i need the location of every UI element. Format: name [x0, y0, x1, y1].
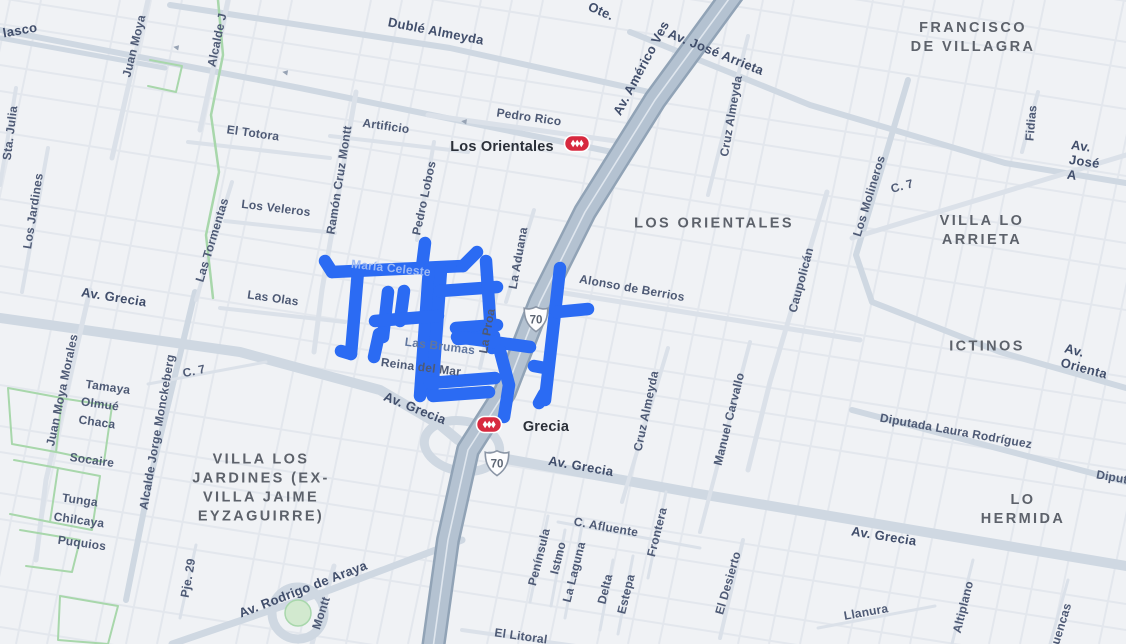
- street-label-av-jos-a: Av. José A: [1066, 137, 1110, 187]
- oneway-arrow-icon: ◄: [171, 41, 182, 52]
- district-label-francisco-de-villagra: FRANCISCO DE VILLAGRA: [911, 19, 1036, 57]
- route-segment-18: [433, 392, 489, 396]
- route-segment-22: [534, 366, 545, 368]
- district-label-villa-los-jardines-ex-villa-jaime-eyzaguirre: VILLA LOS JARDINES (EX- VILLA JAIME EYZA…: [192, 450, 330, 525]
- route-segment-17: [430, 378, 495, 383]
- district-label-los-orientales: LOS ORIENTALES: [634, 215, 794, 234]
- district-label-villa-lo-arrieta: VILLA LO ARRIETA: [910, 212, 1054, 250]
- route-segment-16: [500, 351, 509, 417]
- route-segment-21: [557, 309, 588, 312]
- route-segment-3: [463, 252, 477, 266]
- route-segment-20: [545, 268, 560, 400]
- route-segment-19: [374, 334, 379, 357]
- oneway-arrow-icon: ◄: [280, 66, 291, 77]
- metro-station-icon[interactable]: [476, 416, 503, 439]
- metro-station-label-grecia[interactable]: Grecia: [523, 419, 569, 435]
- route-segment-10: [375, 316, 438, 321]
- metro-station-icon[interactable]: [564, 135, 591, 158]
- metro-station-label-los-orientales[interactable]: Los Orientales: [450, 139, 554, 155]
- district-label-lo-hermida: LO HERMIDA: [972, 491, 1075, 529]
- route-segment-1: [325, 261, 332, 272]
- district-label-ictinos: ICTINOS: [949, 338, 1025, 357]
- route-segment-4: [351, 271, 358, 354]
- route-segment-23: [539, 394, 544, 403]
- oneway-arrow-icon: ◄: [459, 115, 469, 126]
- map-canvas[interactable]: 70 70◄◄◄lascoSta. JuliaJuan MoyaAlcalde …: [0, 0, 1126, 644]
- route-segment-5: [341, 351, 351, 354]
